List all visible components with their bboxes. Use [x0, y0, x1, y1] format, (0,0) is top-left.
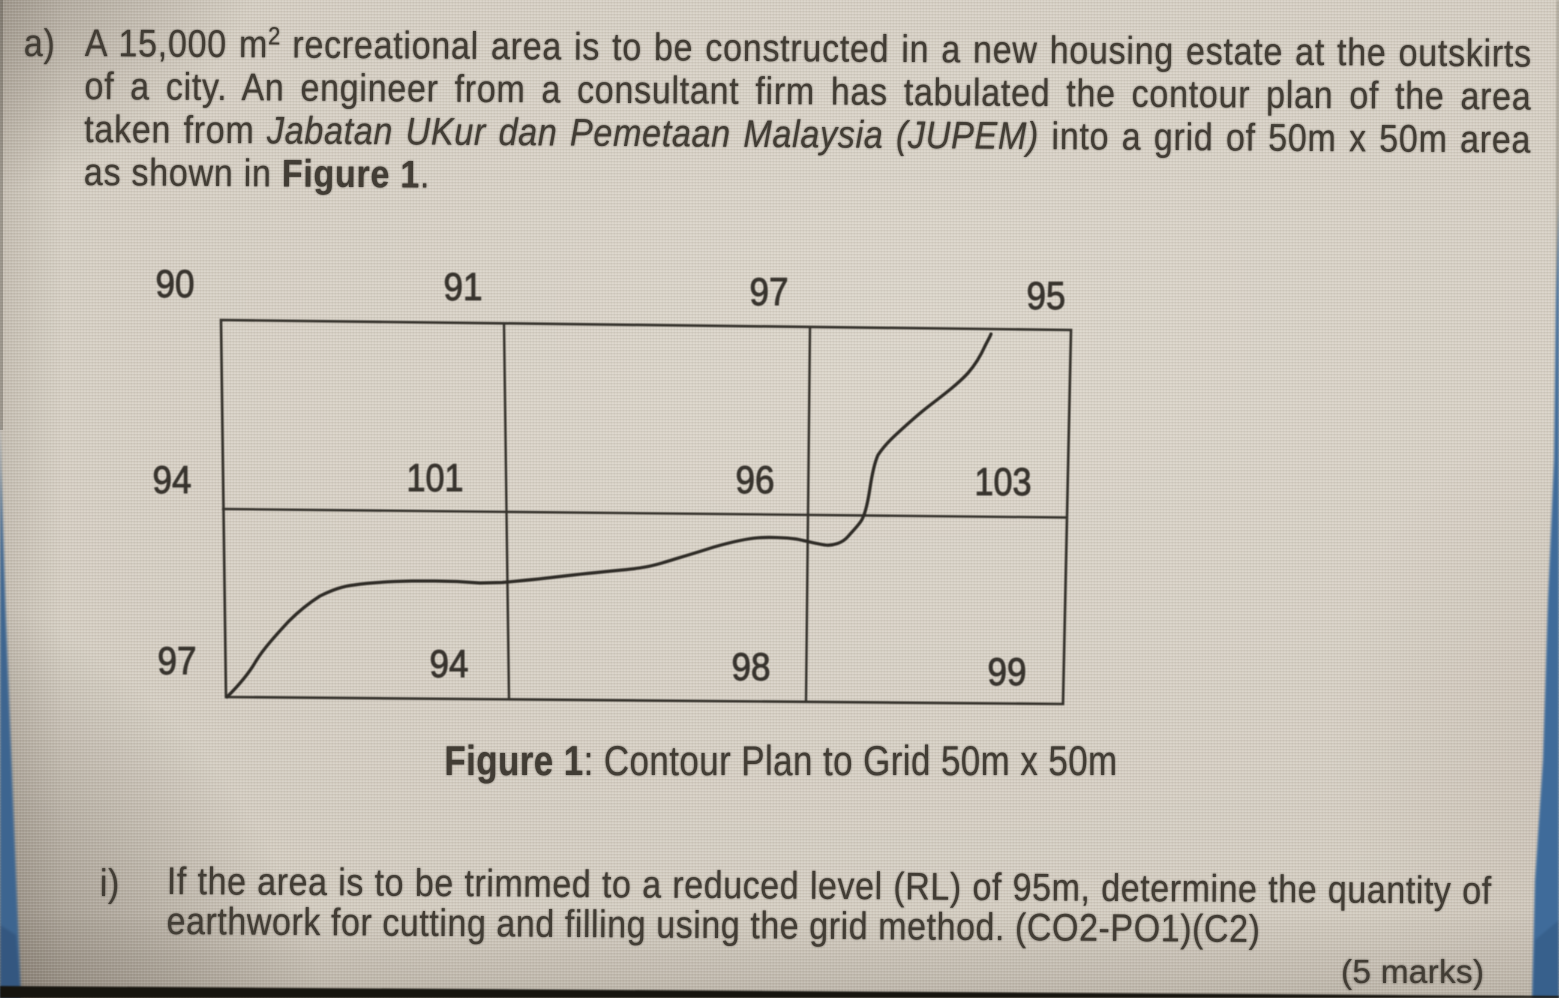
- svg-text:101: 101: [407, 457, 464, 500]
- svg-text:103: 103: [975, 461, 1032, 504]
- svg-text:98: 98: [732, 646, 771, 689]
- svg-text:97: 97: [750, 271, 789, 314]
- svg-text:99: 99: [988, 651, 1027, 694]
- svg-text:91: 91: [444, 266, 483, 309]
- svg-text:90: 90: [156, 263, 195, 306]
- svg-text:96: 96: [736, 459, 775, 502]
- svg-text:94: 94: [430, 643, 469, 686]
- svg-text:97: 97: [158, 640, 197, 683]
- svg-text:94: 94: [153, 459, 192, 502]
- svg-text:95: 95: [1027, 275, 1066, 318]
